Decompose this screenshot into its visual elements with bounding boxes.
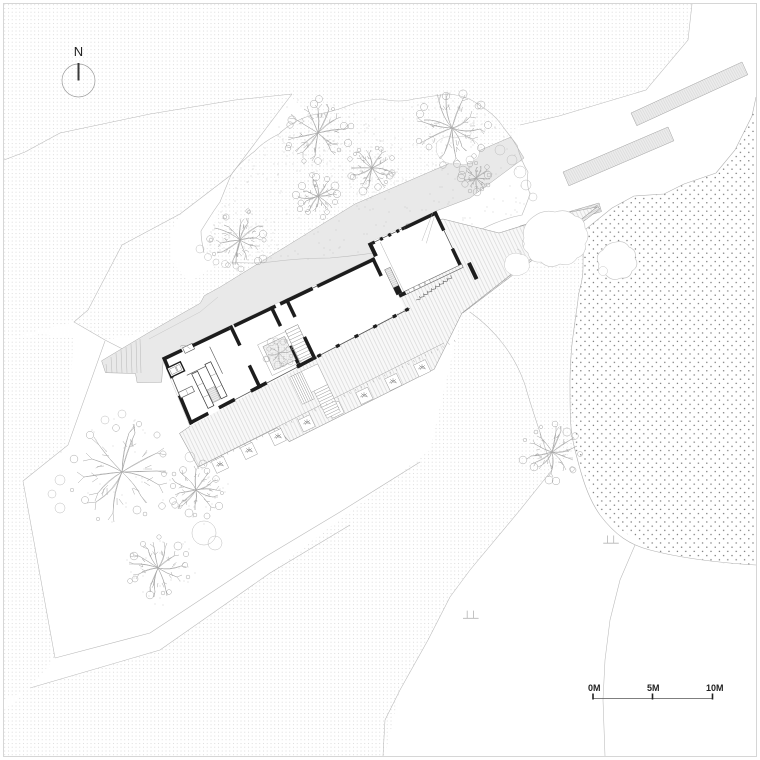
svg-text:N: N xyxy=(74,44,83,59)
svg-text:10M: 10M xyxy=(706,683,724,693)
svg-text:5M: 5M xyxy=(647,683,660,693)
svg-text:0M: 0M xyxy=(588,683,601,693)
